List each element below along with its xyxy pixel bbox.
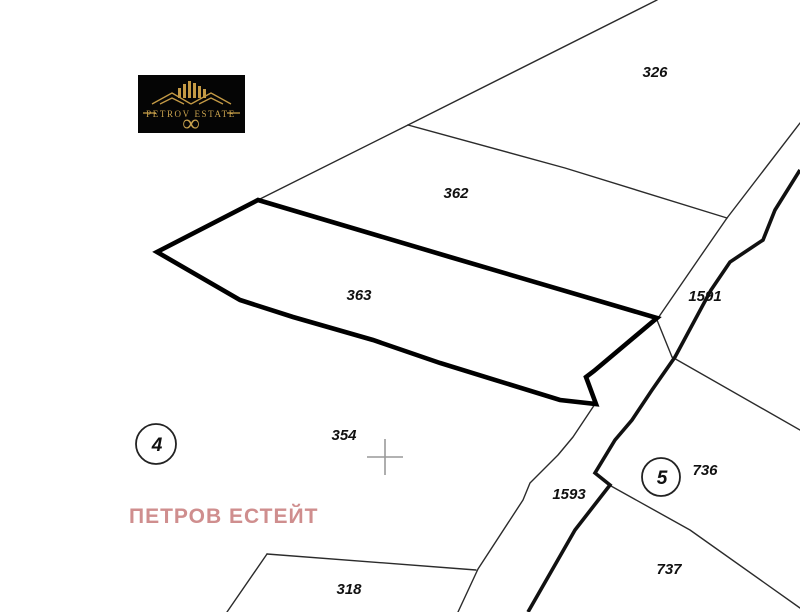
boundary-736-upper [672, 357, 800, 430]
zone-5-number: 5 [657, 468, 668, 489]
parcel-label-362: 362 [443, 185, 469, 202]
parcel-label-326: 326 [642, 64, 668, 81]
cadastral-map: 326 362 363 354 318 736 737 1591 1593 4 … [0, 0, 800, 612]
watermark-text: ПЕТРОВ ЕСТЕЙТ [129, 504, 318, 528]
cadastral-map-canvas: 326 362 363 354 318 736 737 1591 1593 4 … [0, 0, 800, 612]
survey-cross-icon [367, 439, 403, 475]
parcel-363-outline [157, 200, 657, 404]
boundary-right-strip [656, 123, 800, 321]
boundary-318-top [267, 554, 476, 570]
parcel-label-318: 318 [336, 581, 362, 598]
boundary-362-left [258, 125, 408, 200]
road-boundary-line [528, 170, 800, 612]
boundary-1593-left [458, 404, 595, 612]
logo-infinity-icon: ∞ [182, 111, 199, 137]
parcel-label-737: 737 [656, 561, 682, 578]
zone-marker-4: 4 [136, 424, 176, 464]
boundary-318-left [227, 554, 267, 612]
parcel-labels: 326 362 363 354 318 736 737 1591 1593 [331, 64, 721, 598]
parcel-label-363: 363 [346, 287, 372, 304]
boundary-corner-connector [657, 320, 672, 357]
boundary-326-362 [408, 125, 727, 218]
zone-4-number: 4 [151, 435, 163, 456]
parcel-label-736: 736 [692, 462, 718, 479]
boundary-736-737 [611, 486, 800, 608]
petrov-estate-logo: PETROV ESTATE ∞ [138, 75, 245, 137]
parcel-label-354: 354 [331, 427, 357, 444]
parcel-label-1591: 1591 [688, 288, 721, 305]
zone-marker-5: 5 [642, 458, 680, 496]
parcel-label-1593: 1593 [552, 486, 586, 503]
boundary-326-upper [408, 0, 657, 125]
